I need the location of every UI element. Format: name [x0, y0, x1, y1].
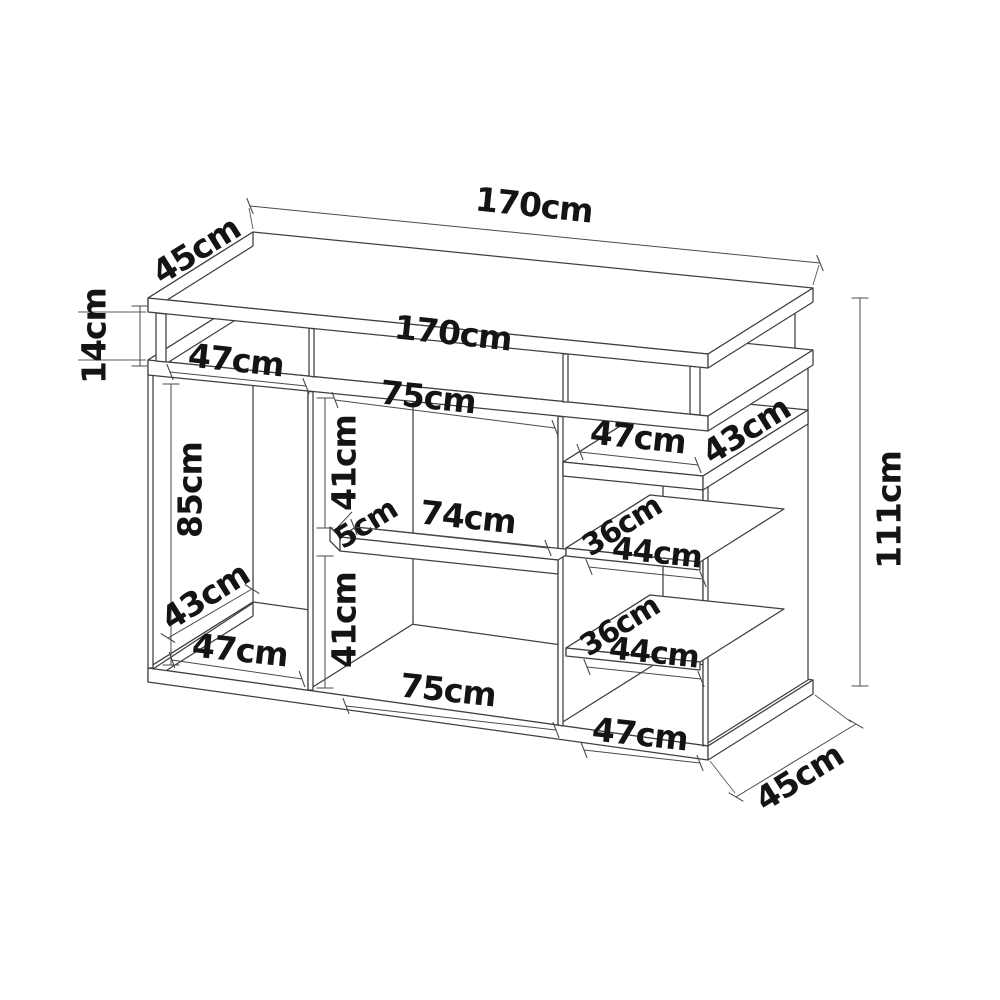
- diagram-page: 170cm45cm14cm170cm47cm75cm47cm43cm111cm8…: [0, 0, 1000, 1000]
- divider-a-front-face: [308, 391, 313, 690]
- dim-label-middle-lower-height: 41cm: [325, 572, 364, 668]
- spacer-left-end: [156, 313, 166, 362]
- extension-line-170cm-right: [813, 265, 819, 285]
- dim-label-bottom-depth: 45cm: [748, 735, 850, 819]
- dim-label-top-gap-height: 14cm: [75, 288, 114, 384]
- dim-label-left-opening-height: 85cm: [171, 442, 210, 538]
- dim-label-middle-upper-height: 41cm: [325, 415, 364, 511]
- dim-label-overall-height: 111cm: [870, 451, 909, 569]
- extension-line-45cm-front: [710, 761, 735, 793]
- divider-b-front-face: [558, 416, 563, 726]
- dim-label-middle-shelf-width: 74cm: [418, 493, 517, 542]
- dim-label-overall-width: 170cm: [473, 179, 594, 230]
- left-wall-front-face: [148, 375, 153, 668]
- spacer-left-mid: [309, 328, 314, 377]
- spacer-right-end: [690, 366, 700, 415]
- extension-line-45cm-back: [815, 695, 851, 722]
- furniture-dimension-diagram: 170cm45cm14cm170cm47cm75cm47cm43cm111cm8…: [0, 0, 1000, 1000]
- spacer-right-mid: [563, 354, 568, 402]
